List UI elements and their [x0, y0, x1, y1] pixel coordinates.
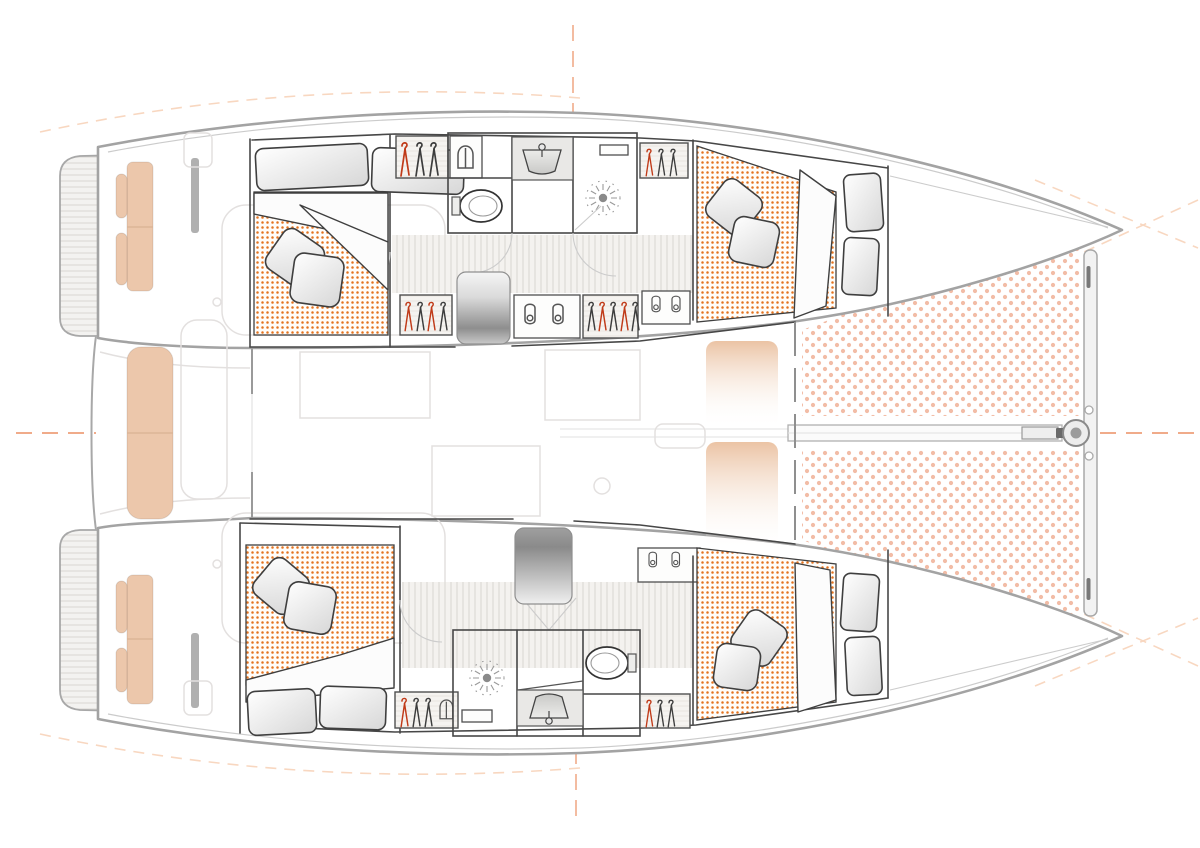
staircase-icon [457, 272, 510, 344]
beam-bolt-bottom [1085, 452, 1093, 460]
seat-cushion [116, 648, 127, 692]
helm-pedestal-port [191, 158, 199, 233]
corridor-floor-port [392, 235, 693, 293]
pillow-shape [319, 686, 386, 730]
shoe-locker [514, 295, 580, 338]
pillow-shape [282, 580, 338, 636]
pillow-shape [255, 143, 369, 191]
duvet-shape [795, 563, 836, 712]
pillow-shape [247, 688, 317, 735]
catamaran-floorplan-page [0, 0, 1200, 848]
cabin-aft-starboard [240, 523, 400, 736]
pillow-shape [840, 573, 880, 632]
helm-pedestal-starboard [191, 633, 199, 708]
wardrobe [583, 295, 638, 338]
shower-shelf [600, 145, 628, 155]
staircase-icon [515, 528, 572, 604]
pillow-shape [842, 237, 880, 296]
furler-axle [1071, 428, 1082, 439]
seat-cushion [116, 174, 127, 218]
forward-seat-pad-port [706, 341, 778, 428]
seat-cushion [116, 233, 127, 285]
crossbeam-cleat-bottom [1087, 578, 1091, 600]
shower-shelf [462, 710, 492, 722]
pillow-shape [712, 642, 762, 692]
seat-cushion [116, 581, 127, 633]
beam-bolt-top [1085, 406, 1093, 414]
crossbeam-cleat-top [1087, 266, 1091, 288]
pillow-shape [843, 173, 884, 232]
pillow-shape [289, 252, 345, 308]
shoe-locker [642, 291, 690, 324]
catamaran-floorplan-svg [0, 0, 1200, 848]
pillow-shape [845, 636, 883, 696]
pillow-shape [727, 215, 782, 270]
shoe-locker [638, 548, 700, 582]
seagull-striker [1022, 427, 1058, 439]
wardrobe [640, 694, 690, 728]
wardrobe [395, 692, 458, 728]
